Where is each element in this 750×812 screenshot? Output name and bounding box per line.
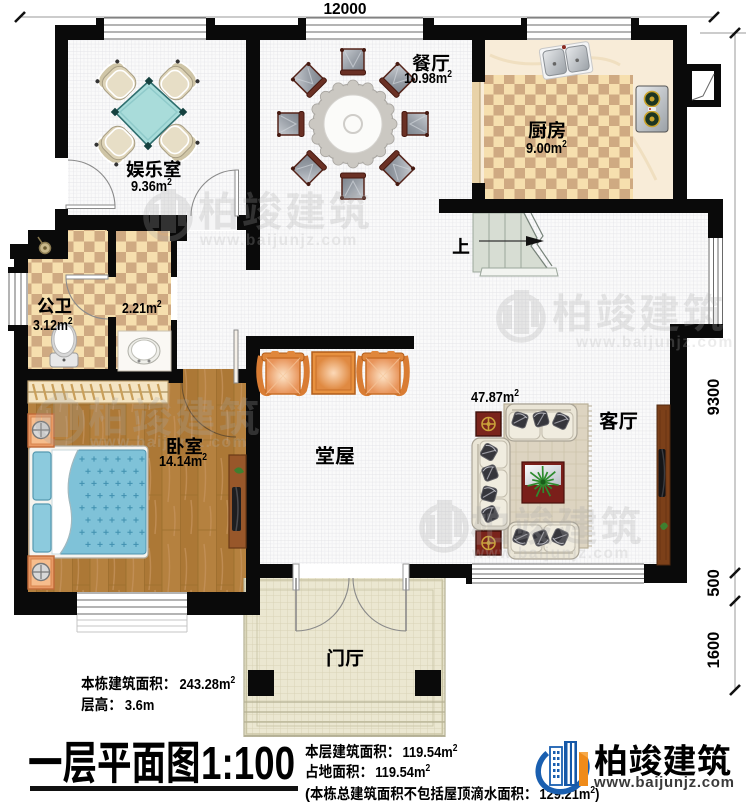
svg-text:1:100: 1:100 — [201, 737, 295, 789]
svg-text:500: 500 — [705, 569, 723, 597]
svg-text:10.98m2: 10.98m2 — [404, 68, 452, 86]
svg-text:www.baijunjz.com: www.baijunjz.com — [471, 545, 630, 562]
svg-text:47.87m2: 47.87m2 — [471, 387, 519, 405]
svg-text:14.14m2: 14.14m2 — [159, 451, 207, 469]
svg-text:119.54m2: 119.54m2 — [375, 762, 430, 780]
svg-text:3.6m: 3.6m — [125, 696, 154, 713]
svg-text:www.baijunjz.com: www.baijunjz.com — [575, 334, 734, 351]
svg-text:1600: 1600 — [705, 632, 723, 669]
svg-text:9.36m2: 9.36m2 — [131, 176, 172, 194]
svg-text:3.12m2: 3.12m2 — [33, 315, 73, 333]
svg-text:www.baijunjz.com: www.baijunjz.com — [199, 232, 358, 249]
svg-text:9.00m2: 9.00m2 — [526, 138, 567, 156]
svg-text:9300: 9300 — [705, 379, 723, 416]
svg-text:2.21m2: 2.21m2 — [122, 298, 162, 316]
svg-text:243.28m2: 243.28m2 — [179, 674, 235, 692]
svg-text:119.54m2: 119.54m2 — [402, 742, 457, 760]
svg-text:12000: 12000 — [323, 1, 366, 18]
svg-text:www.baijunjz.com: www.baijunjz.com — [593, 774, 735, 791]
